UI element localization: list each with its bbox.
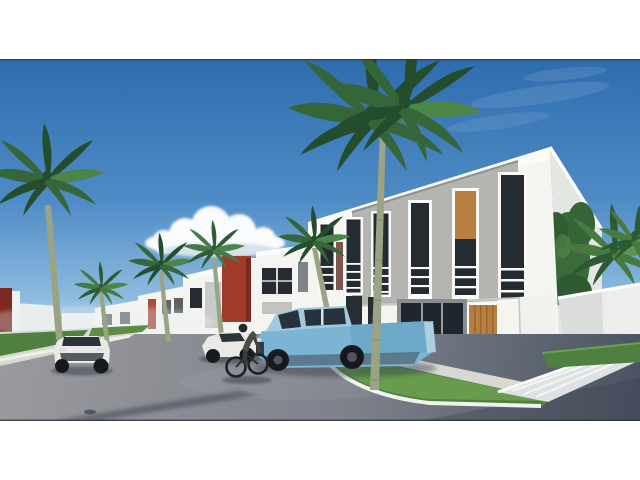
cyclist-leg bbox=[245, 350, 247, 364]
cyclist-head bbox=[239, 324, 248, 333]
upper-window-6 bbox=[498, 172, 527, 302]
convertible-car bbox=[51, 336, 113, 376]
convertible-windshield bbox=[62, 337, 101, 346]
upper-window-2 bbox=[344, 217, 363, 295]
upper-window-5 bbox=[452, 188, 479, 300]
photo-frame bbox=[0, 0, 640, 480]
truck-side-windows bbox=[304, 308, 346, 326]
upper-window-4 bbox=[408, 200, 432, 299]
architectural-rendering bbox=[0, 0, 640, 480]
